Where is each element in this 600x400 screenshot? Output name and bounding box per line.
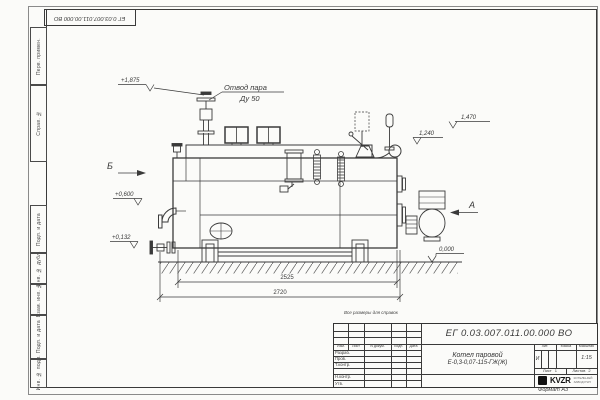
view-arrow-b: [118, 170, 146, 176]
tb-rule: [334, 356, 421, 357]
tb-product-name-line1: Котел паровой: [452, 352, 502, 359]
org-name: КОТЕЛЬНЫЙ ЗАВОД РЭП: [574, 377, 593, 384]
tb-row-razrab: Разраб.: [335, 351, 350, 355]
tb-row-tkontr: Т.контр.: [335, 363, 350, 367]
tb-rule: [334, 337, 421, 338]
elevation-marks: [110, 85, 490, 263]
elevation-0132: +0,132: [112, 235, 131, 241]
reference-note: Все размеры для справок: [344, 310, 398, 315]
tb-row-nkontr: Н.контр.: [335, 375, 351, 379]
lever-safety-device: [349, 112, 374, 157]
burner-elbow: [159, 208, 187, 228]
tb-scale-value: 1:15: [576, 350, 597, 368]
tb-rule: [334, 331, 421, 332]
tb-org-cell: KVZR КОТЕЛЬНЫЙ ЗАВОД РЭП: [534, 374, 600, 387]
view-arrow-a: [450, 210, 478, 216]
steam-outlet-valve: [197, 92, 215, 145]
steam-outlet-label: Отвод пара: [224, 83, 267, 92]
tb-rule: [334, 368, 421, 369]
drawing-page: Перв. примен. Справ. № Подп. и дата Инв.…: [0, 0, 600, 400]
tb-product-name-line2: Е-0,3-0,07-115-ГЖ(Ж): [448, 360, 508, 366]
front-drain-valve: [150, 241, 175, 254]
tb-row-utv: Утв.: [335, 382, 343, 386]
gauge-handle: [385, 114, 394, 150]
tb-lit-value: И: [534, 350, 541, 368]
dimension-2720: 2720: [273, 290, 287, 296]
elevation-1470: 1,470: [461, 115, 477, 121]
boiler-deck: [186, 145, 372, 158]
elevation-0600: +0,600: [115, 192, 134, 198]
org-name-line2: ЗАВОД РЭП: [574, 381, 593, 385]
elevation-1240: 1,240: [419, 131, 435, 137]
tb-rule: [334, 380, 421, 381]
tb-col-list: Лист: [348, 344, 364, 350]
tb-col-podp: Подп.: [391, 344, 406, 350]
tb-doc-number: ЕГ 0.03.007.011.00.000 ВО: [421, 324, 597, 344]
steam-outlet-dn: Ду 50: [239, 94, 260, 103]
tb-product-name: Котел паровой Е-0,3-0,07-115-ГЖ(Ж): [421, 344, 534, 374]
tb-sheets-label: Листов: [572, 369, 585, 373]
format-note: Формат А3: [538, 387, 568, 393]
manhole-oval: [210, 223, 232, 239]
kvzr-logo-icon: [538, 376, 547, 385]
tb-rule: [541, 350, 542, 368]
boiler-supports: [202, 240, 368, 262]
title-block: Изм. Лист N докум. Подп. Дата Разраб. Пр…: [333, 323, 598, 388]
tb-col-ndoc: N докум.: [364, 344, 391, 350]
ground-line: [158, 262, 462, 274]
deck-instrument-boxes: [225, 127, 280, 145]
view-letter-b: Б: [107, 161, 113, 171]
tb-massa-label: Масса: [556, 344, 576, 350]
dimension-2525: 2525: [280, 275, 294, 281]
tb-sheet-value: 1: [555, 369, 557, 373]
tb-rule: [548, 350, 549, 368]
feed-pump: [406, 191, 445, 241]
front-top-valve: [172, 144, 182, 159]
level-gauge-1: [314, 150, 321, 185]
elevation-1875: +1,875: [121, 78, 140, 84]
tb-col-data: Дата: [406, 344, 421, 350]
elevation-0000: 0,000: [439, 247, 455, 253]
kvzr-logo-text: KVZR: [550, 376, 571, 385]
tb-sheets-value: 2: [588, 369, 590, 373]
view-letter-a: А: [468, 200, 475, 210]
level-gauge-2: [338, 152, 345, 187]
rear-nozzles: [397, 176, 406, 226]
boiler-shell: [173, 158, 397, 248]
tb-row-prov: Пров.: [335, 357, 346, 361]
tb-sheet-label: Лист: [543, 369, 552, 373]
safety-valve: [280, 150, 303, 192]
